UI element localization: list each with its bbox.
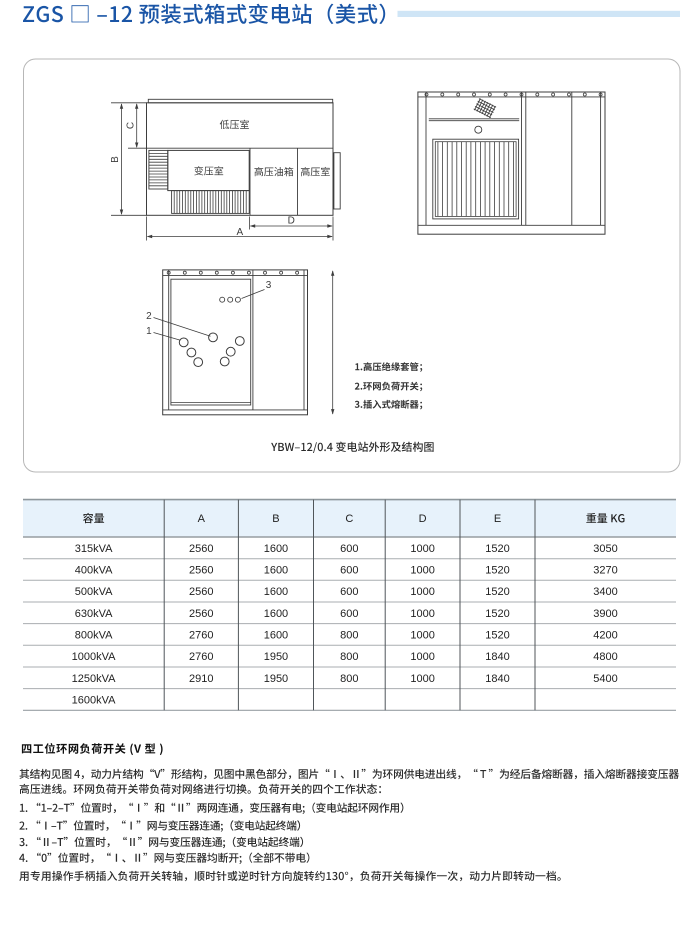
svg-text:C: C [126, 122, 137, 129]
svg-text:1600: 1600 [264, 608, 288, 620]
svg-text:600: 600 [340, 586, 358, 598]
svg-text:1600: 1600 [264, 586, 288, 598]
svg-text:3900: 3900 [593, 608, 617, 620]
svg-text:1520: 1520 [485, 586, 509, 598]
svg-text:3050: 3050 [593, 543, 617, 555]
svg-text:315kVA: 315kVA [75, 543, 113, 555]
svg-text:A: A [198, 513, 206, 525]
svg-text:B: B [110, 156, 121, 163]
svg-text:E: E [494, 513, 501, 525]
svg-text:1520: 1520 [485, 608, 509, 620]
svg-text:1520: 1520 [485, 543, 509, 555]
svg-text:1250kVA: 1250kVA [72, 673, 116, 685]
svg-text:A: A [236, 227, 243, 238]
svg-text:1000: 1000 [410, 630, 434, 642]
svg-text:1: 1 [146, 326, 152, 337]
svg-text:630kVA: 630kVA [75, 608, 113, 620]
svg-text:1600kVA: 1600kVA [72, 695, 116, 707]
svg-text:B: B [272, 513, 279, 525]
svg-text:1000kVA: 1000kVA [72, 651, 116, 663]
svg-text:2560: 2560 [189, 543, 213, 555]
svg-text:1840: 1840 [485, 673, 509, 685]
svg-text:2: 2 [146, 311, 152, 322]
svg-text:1840: 1840 [485, 651, 509, 663]
svg-text:1520: 1520 [485, 630, 509, 642]
svg-text:2560: 2560 [189, 586, 213, 598]
svg-text:800: 800 [340, 673, 358, 685]
svg-text:1000: 1000 [410, 608, 434, 620]
svg-text:C: C [345, 513, 353, 525]
svg-text:1520: 1520 [485, 565, 509, 577]
svg-text:1600: 1600 [264, 630, 288, 642]
svg-text:1950: 1950 [264, 673, 288, 685]
svg-text:1950: 1950 [264, 651, 288, 663]
svg-text:3400: 3400 [593, 586, 617, 598]
svg-text:800kVA: 800kVA [75, 630, 113, 642]
svg-text:600: 600 [340, 608, 358, 620]
svg-text:600: 600 [340, 543, 358, 555]
svg-text:1000: 1000 [410, 673, 434, 685]
svg-text:1000: 1000 [410, 543, 434, 555]
svg-text:D: D [419, 513, 427, 525]
svg-text:1000: 1000 [410, 651, 434, 663]
svg-text:4200: 4200 [593, 630, 617, 642]
svg-text:2760: 2760 [189, 651, 213, 663]
svg-text:1000: 1000 [410, 586, 434, 598]
svg-text:600: 600 [340, 565, 358, 577]
svg-text:800: 800 [340, 651, 358, 663]
svg-text:1600: 1600 [264, 565, 288, 577]
svg-text:500kVA: 500kVA [75, 586, 113, 598]
svg-text:400kVA: 400kVA [75, 565, 113, 577]
svg-text:3270: 3270 [593, 565, 617, 577]
svg-text:5400: 5400 [593, 673, 617, 685]
svg-text:4800: 4800 [593, 651, 617, 663]
svg-text:2560: 2560 [189, 608, 213, 620]
svg-text:3: 3 [266, 280, 272, 291]
svg-text:800: 800 [340, 630, 358, 642]
svg-text:2910: 2910 [189, 673, 213, 685]
svg-text:1600: 1600 [264, 543, 288, 555]
svg-text:2760: 2760 [189, 630, 213, 642]
svg-text:1000: 1000 [410, 565, 434, 577]
svg-text:2560: 2560 [189, 565, 213, 577]
svg-text:D: D [288, 215, 295, 226]
